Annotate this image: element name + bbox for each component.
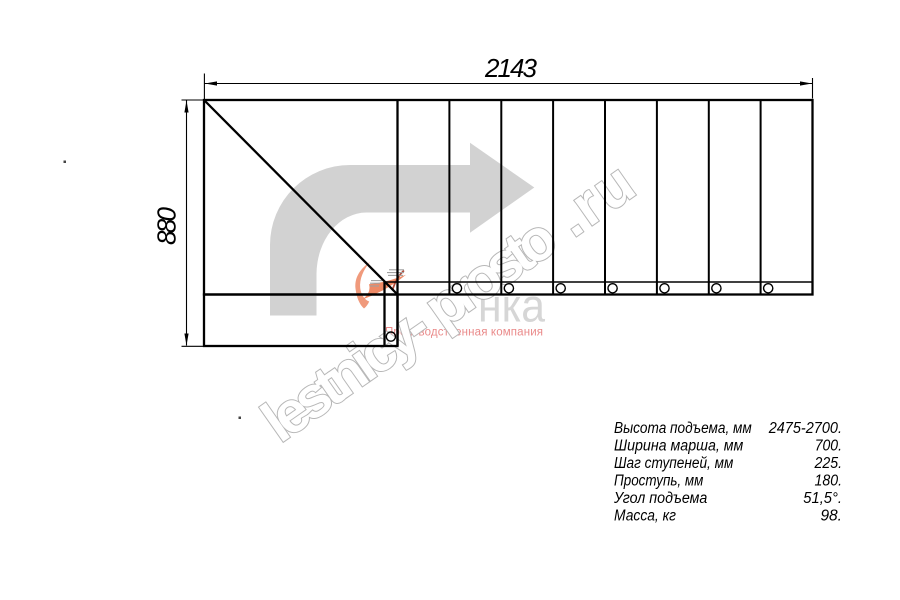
svg-text:700.: 700. <box>815 437 842 454</box>
svg-text:98.: 98. <box>820 507 842 524</box>
svg-text:Высота подъема, мм: Высота подъема, мм <box>614 420 752 437</box>
svg-text:2475-2700.: 2475-2700. <box>768 420 842 437</box>
svg-text:225.: 225. <box>814 455 842 472</box>
svg-text:Ширина марша, мм: Ширина марша, мм <box>614 437 744 454</box>
svg-text:Проступь, мм: Проступь, мм <box>614 472 704 489</box>
svg-text:Масса, кг: Масса, кг <box>614 507 676 524</box>
svg-text:51,5°.: 51,5°. <box>803 490 842 507</box>
svg-text:Угол подъема: Угол подъема <box>613 490 708 507</box>
svg-text:Шаг ступеней, мм: Шаг ступеней, мм <box>614 455 734 472</box>
svg-text:2143: 2143 <box>484 53 538 83</box>
svg-text:180.: 180. <box>815 472 843 489</box>
svg-text:880: 880 <box>152 206 182 245</box>
